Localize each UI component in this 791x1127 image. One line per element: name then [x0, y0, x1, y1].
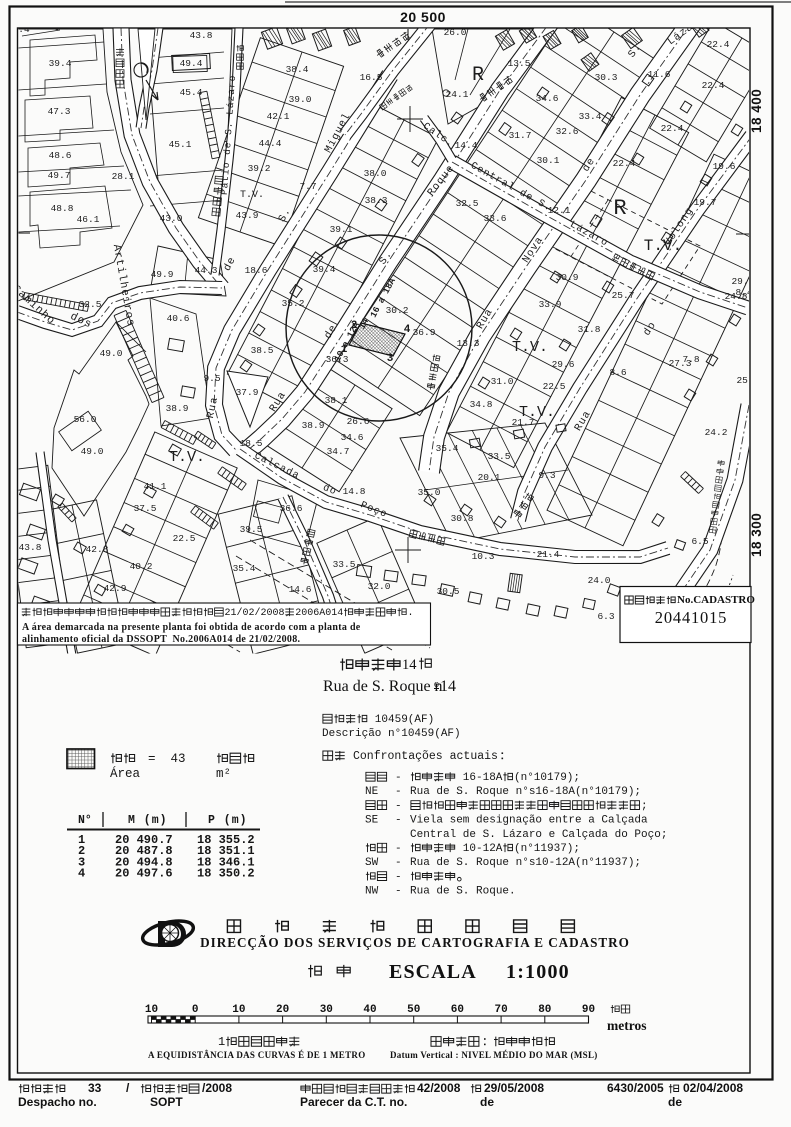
svg-text:18.6: 18.6	[245, 265, 268, 276]
svg-text:-: -	[395, 800, 402, 812]
svg-text:30.1: 30.1	[537, 155, 560, 166]
svg-text:T.V.: T.V.	[169, 449, 205, 466]
svg-text:49.9: 49.9	[151, 269, 174, 280]
svg-text:metros: metros	[607, 1018, 647, 1033]
svg-text:32.0: 32.0	[368, 581, 391, 592]
svg-text:49.0: 49.0	[81, 446, 104, 457]
svg-text:50: 50	[407, 1004, 420, 1016]
svg-text:Rua de S. Roque n°s10-12A(n°11: Rua de S. Roque n°s10-12A(n°11937);	[410, 857, 641, 869]
svg-text:33.5: 33.5	[488, 451, 511, 462]
svg-text:22.5: 22.5	[543, 381, 566, 392]
svg-text:30: 30	[320, 1004, 333, 1016]
svg-text:35.4: 35.4	[436, 443, 459, 454]
svg-text:34.8: 34.8	[470, 399, 493, 410]
svg-text:19.7: 19.7	[694, 197, 717, 208]
svg-text:(n°11937);: (n°11937);	[514, 843, 580, 855]
svg-text:10: 10	[232, 1004, 245, 1016]
svg-text:18.5: 18.5	[240, 438, 263, 449]
svg-text:Parecer da C.T. no.: Parecer da C.T. no.	[300, 1095, 407, 1109]
svg-text:Área: Área	[110, 766, 141, 781]
svg-text:18 300: 18 300	[749, 513, 764, 557]
svg-text:4: 4	[404, 324, 411, 336]
svg-text:42.9: 42.9	[104, 583, 127, 594]
svg-text:19.6: 19.6	[713, 161, 736, 172]
svg-text:39.4: 39.4	[313, 264, 336, 275]
svg-text:22.4: 22.4	[661, 123, 684, 134]
svg-text:30.5: 30.5	[437, 586, 460, 597]
svg-text:A área demarcada na presente p: A área demarcada na presente planta foi …	[22, 622, 361, 633]
svg-text:18 400: 18 400	[749, 89, 764, 133]
svg-text:13.5: 13.5	[508, 58, 531, 69]
svg-text:-: -	[395, 815, 402, 827]
svg-text:9.3: 9.3	[538, 470, 555, 481]
svg-text:Confrontações actuais: Confrontações actuais	[346, 750, 498, 763]
svg-text:.: .	[408, 608, 414, 619]
svg-text:20 497.6: 20 497.6	[115, 867, 173, 881]
svg-text:30.9: 30.9	[556, 272, 579, 283]
svg-text:45.1: 45.1	[169, 139, 192, 150]
svg-text:NE: NE	[365, 786, 379, 798]
svg-text:49.4: 49.4	[180, 58, 203, 69]
svg-text:M (m): M (m)	[128, 814, 168, 827]
svg-text:1:1000: 1:1000	[506, 961, 570, 983]
svg-text:No.CADASTRO: No.CADASTRO	[677, 594, 755, 606]
svg-text:-: -	[395, 857, 402, 869]
svg-text:4: 4	[78, 867, 85, 881]
svg-text:2006A014: 2006A014	[295, 608, 343, 619]
svg-text:02/04/2008: 02/04/2008	[683, 1081, 743, 1095]
svg-text:39.2: 39.2	[248, 163, 271, 174]
svg-text:9.5: 9.5	[203, 373, 220, 384]
svg-text:de: de	[668, 1095, 682, 1109]
svg-text:Viela sem designação entre a C: Viela sem designação entre a Calçada	[410, 815, 648, 827]
svg-text:Rua de S. Roque n°s16-18A(n°10: Rua de S. Roque n°s16-18A(n°10179);	[410, 786, 641, 798]
svg-text:38.5: 38.5	[251, 345, 274, 356]
svg-text:49.7: 49.7	[48, 170, 71, 181]
svg-text:alinhamento oficial da DSSOPT: alinhamento oficial da DSSOPT No.2006A01…	[22, 634, 301, 645]
svg-text:13.3: 13.3	[457, 338, 480, 349]
svg-text:16-18A: 16-18A	[456, 772, 503, 784]
svg-text:44.4: 44.4	[259, 138, 282, 149]
svg-text:14: 14	[440, 678, 456, 695]
svg-text:6.5: 6.5	[691, 536, 708, 547]
svg-text:1: 1	[218, 1035, 225, 1049]
svg-text:14: 14	[402, 657, 417, 673]
svg-text:= 43: = 43	[148, 752, 186, 766]
svg-text:41.1: 41.1	[144, 481, 167, 492]
svg-text:T.V.: T.V.	[519, 404, 555, 421]
svg-text:29/05/2008: 29/05/2008	[484, 1081, 544, 1095]
svg-text:20 500: 20 500	[400, 9, 446, 25]
svg-text:36.6: 36.6	[280, 503, 303, 514]
svg-text:(n°10179);: (n°10179);	[514, 772, 580, 784]
svg-text:40: 40	[363, 1004, 376, 1016]
svg-text:SOPT: SOPT	[150, 1095, 183, 1109]
svg-text:14.6: 14.6	[289, 584, 312, 595]
svg-text:NW: NW	[365, 886, 379, 898]
svg-text:43.9: 43.9	[236, 210, 259, 221]
svg-text:90: 90	[582, 1004, 595, 1016]
svg-text:44.3: 44.3	[195, 265, 218, 276]
svg-text:39.1: 39.1	[330, 224, 353, 235]
svg-text:30.2: 30.2	[386, 305, 409, 316]
svg-text:0: 0	[192, 1004, 199, 1016]
svg-text:14.4: 14.4	[455, 140, 478, 151]
svg-text:80: 80	[538, 1004, 551, 1016]
svg-text:7.7: 7.7	[299, 181, 316, 192]
svg-text:40.2: 40.2	[130, 561, 153, 572]
svg-text:47.3: 47.3	[48, 106, 71, 117]
svg-text:8.6: 8.6	[609, 367, 626, 378]
svg-text:-: -	[395, 843, 402, 855]
svg-text:6.3: 6.3	[597, 611, 614, 622]
svg-text:ESCALA: ESCALA	[389, 961, 477, 983]
svg-text:20441015: 20441015	[655, 608, 727, 627]
svg-text:60: 60	[451, 1004, 464, 1016]
svg-text:T.V.: T.V.	[240, 190, 264, 201]
svg-text:/2008: /2008	[202, 1081, 232, 1095]
svg-text:R: R	[472, 64, 484, 87]
svg-text:27.3: 27.3	[669, 358, 692, 369]
svg-text:70: 70	[494, 1004, 507, 1016]
svg-text:40.6: 40.6	[167, 313, 190, 324]
svg-text:42.1: 42.1	[267, 111, 290, 122]
svg-text:43.8: 43.8	[190, 30, 213, 41]
svg-text:3: 3	[387, 353, 394, 365]
svg-text:-: -	[395, 772, 402, 784]
svg-text:45.4: 45.4	[180, 87, 203, 98]
svg-text:35.4: 35.4	[233, 563, 256, 574]
svg-text:28.1: 28.1	[112, 171, 135, 182]
svg-text:56.0: 56.0	[74, 414, 97, 425]
svg-text:46.1: 46.1	[77, 214, 100, 225]
svg-text:33: 33	[88, 1081, 102, 1095]
svg-text:A EQUIDISTÂNCIA DAS CURVAS É D: A EQUIDISTÂNCIA DAS CURVAS É DE 1 METRO	[148, 1050, 366, 1060]
svg-text:-: -	[395, 871, 402, 883]
svg-text:37.9: 37.9	[236, 387, 259, 398]
svg-text:25.7: 25.7	[612, 290, 635, 301]
svg-text:21.4: 21.4	[537, 549, 560, 560]
svg-text:Central de S. Lázaro e Calçada: Central de S. Lázaro e Calçada do Poço;	[410, 829, 667, 841]
svg-text:24.0: 24.0	[588, 575, 611, 586]
svg-text:N°: N°	[78, 814, 92, 827]
svg-text:18 350.2: 18 350.2	[197, 867, 255, 881]
svg-text:Descrição n°10459(AF): Descrição n°10459(AF)	[322, 728, 461, 740]
svg-text:30.8: 30.8	[451, 513, 474, 524]
svg-text:22.5: 22.5	[173, 533, 196, 544]
svg-text:22.4: 22.4	[702, 80, 725, 91]
svg-text:38.3: 38.3	[365, 195, 388, 206]
svg-text:10459(AF): 10459(AF)	[368, 714, 434, 726]
svg-text:-: -	[395, 786, 402, 798]
svg-text:o: o	[434, 679, 439, 690]
svg-text:10-12A: 10-12A	[456, 843, 503, 855]
svg-text:34.6: 34.6	[536, 93, 559, 104]
svg-text:48.6: 48.6	[49, 150, 72, 161]
svg-text:24.2: 24.2	[705, 427, 728, 438]
svg-text:m²: m²	[216, 767, 231, 781]
svg-text:43.0: 43.0	[160, 213, 183, 224]
svg-text:49.0: 49.0	[100, 348, 123, 359]
svg-text:29.: 29.	[731, 276, 748, 287]
svg-text:42.8: 42.8	[86, 544, 109, 555]
svg-text:38.1: 38.1	[325, 395, 348, 406]
svg-text:26.6: 26.6	[347, 416, 370, 427]
svg-text:37.5: 37.5	[134, 503, 157, 514]
svg-text:39.5: 39.5	[240, 524, 263, 535]
svg-text:33.9: 33.9	[539, 299, 562, 310]
svg-text:6430/2005: 6430/2005	[607, 1081, 664, 1095]
svg-text:Despacho no.: Despacho no.	[18, 1095, 97, 1109]
svg-text:39.4: 39.4	[49, 58, 72, 69]
svg-text:32.5: 32.5	[456, 198, 479, 209]
svg-text:33.4: 33.4	[579, 111, 602, 122]
svg-text:21/02/2008: 21/02/2008	[225, 607, 285, 619]
svg-text:43.8: 43.8	[19, 542, 42, 553]
svg-text:20: 20	[276, 1004, 289, 1016]
svg-text:39.0: 39.0	[289, 94, 312, 105]
svg-text:31.0: 31.0	[491, 376, 514, 387]
svg-text:;: ;	[641, 800, 648, 812]
svg-text:36.9: 36.9	[413, 327, 436, 338]
svg-text:Rua de S. Roque.: Rua de S. Roque.	[410, 886, 516, 898]
svg-text:34.6: 34.6	[341, 432, 364, 443]
svg-text:38.9: 38.9	[166, 403, 189, 414]
svg-text:DIRECÇÃO DOS SERVIÇOS DE CARTO: DIRECÇÃO DOS SERVIÇOS DE CARTOGRAFIA E C…	[200, 935, 630, 950]
svg-text:22.4: 22.4	[707, 39, 730, 50]
svg-text:10: 10	[145, 1004, 158, 1016]
svg-text:24.8: 24.8	[725, 291, 748, 302]
svg-text:11.6: 11.6	[648, 69, 671, 80]
svg-text:38.4: 38.4	[286, 64, 309, 75]
svg-text:32.6: 32.6	[556, 126, 579, 137]
svg-text:30.3: 30.3	[595, 72, 618, 83]
svg-text:35.0: 35.0	[418, 487, 441, 498]
svg-text:31.7: 31.7	[509, 130, 532, 141]
svg-text:R: R	[613, 196, 626, 221]
svg-text:-: -	[395, 886, 402, 898]
svg-text:Datum Vertical : NIVEL MÉDIO D: Datum Vertical : NIVEL MÉDIO DO MAR (MSL…	[390, 1050, 598, 1060]
svg-text:48.8: 48.8	[51, 203, 74, 214]
svg-text:P (m): P (m)	[208, 814, 248, 827]
svg-text:29.6: 29.6	[552, 359, 575, 370]
svg-text:16.5: 16.5	[360, 72, 383, 83]
svg-text:Rua de S. Roque n: Rua de S. Roque n	[323, 678, 443, 695]
svg-text:T.V.: T.V.	[512, 339, 548, 356]
svg-text:33.5: 33.5	[333, 559, 356, 570]
svg-text:de: de	[480, 1095, 494, 1109]
svg-text:38.9: 38.9	[302, 420, 325, 431]
svg-text:38.0: 38.0	[364, 168, 387, 179]
svg-text:34.7: 34.7	[327, 446, 350, 457]
svg-text:SW: SW	[365, 857, 379, 869]
svg-text:SE: SE	[365, 815, 379, 827]
svg-text:33.6: 33.6	[484, 213, 507, 224]
svg-text:22.4: 22.4	[613, 158, 636, 169]
svg-text:42/2008: 42/2008	[417, 1081, 461, 1095]
svg-text:26.0: 26.0	[444, 27, 467, 38]
svg-text:20.1: 20.1	[478, 472, 501, 483]
svg-text:32.5: 32.5	[79, 299, 102, 310]
svg-text:10.3: 10.3	[472, 551, 495, 562]
svg-text:31.8: 31.8	[578, 324, 601, 335]
svg-text:36.3: 36.3	[326, 354, 349, 365]
svg-text:35.2: 35.2	[282, 298, 305, 309]
svg-text:14.8: 14.8	[343, 486, 366, 497]
